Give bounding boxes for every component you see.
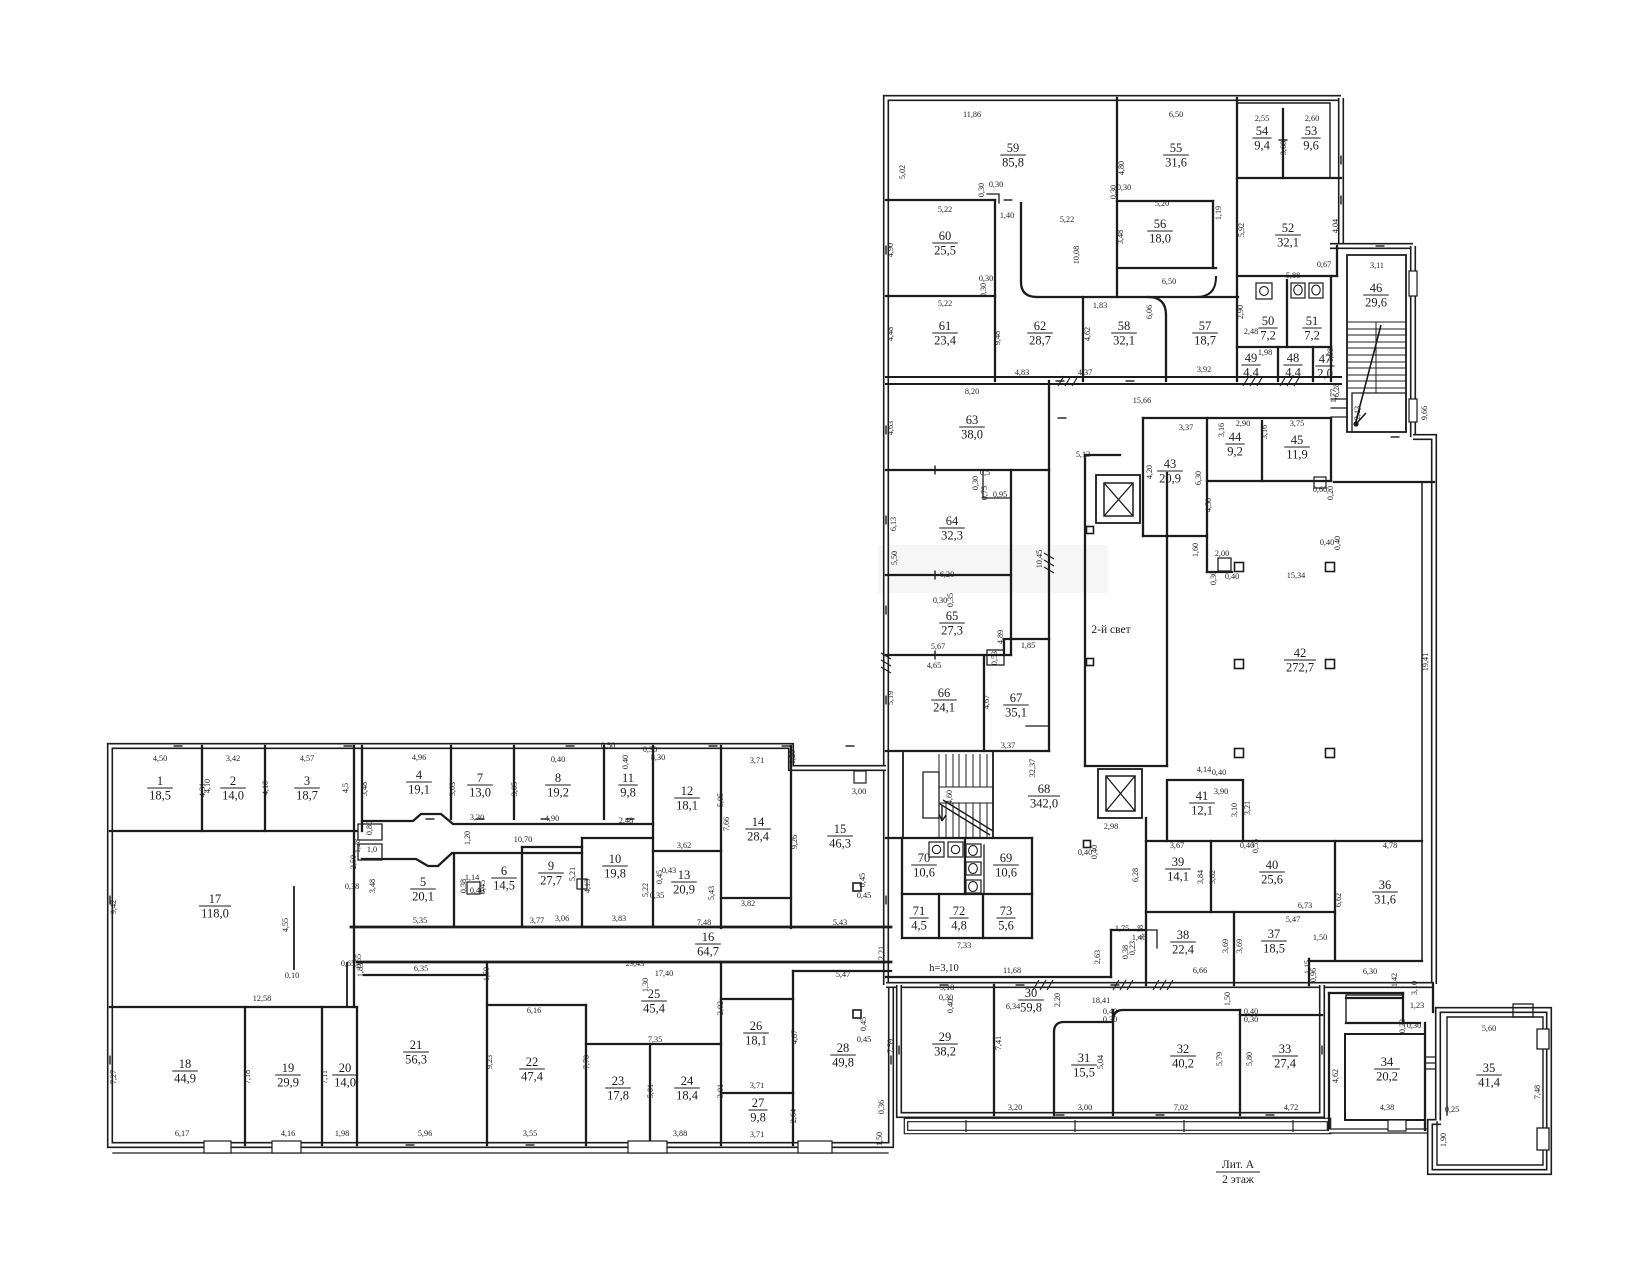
svg-text:Лит. А: Лит. А bbox=[1222, 1159, 1255, 1171]
svg-text:6,30: 6,30 bbox=[1194, 471, 1203, 485]
svg-text:3,03: 3,03 bbox=[448, 782, 457, 796]
svg-text:9,66: 9,66 bbox=[1420, 406, 1429, 420]
svg-text:45: 45 bbox=[1291, 433, 1304, 447]
svg-text:6,28: 6,28 bbox=[1131, 868, 1140, 882]
svg-text:3,30: 3,30 bbox=[470, 813, 484, 822]
svg-text:5,67: 5,67 bbox=[931, 642, 945, 651]
svg-text:1,50: 1,50 bbox=[1313, 933, 1327, 942]
svg-text:20,9: 20,9 bbox=[673, 883, 695, 897]
svg-text:3,48: 3,48 bbox=[368, 879, 377, 893]
svg-text:20,2: 20,2 bbox=[1376, 1070, 1398, 1084]
svg-text:5,88: 5,88 bbox=[1286, 271, 1300, 280]
svg-text:58: 58 bbox=[1118, 319, 1131, 333]
svg-text:0,35: 0,35 bbox=[946, 593, 955, 607]
svg-text:4,90: 4,90 bbox=[886, 243, 895, 257]
svg-text:7,11: 7,11 bbox=[320, 1070, 329, 1084]
svg-text:29,6: 29,6 bbox=[1365, 296, 1387, 310]
svg-text:48: 48 bbox=[1287, 351, 1300, 365]
svg-text:1,60: 1,60 bbox=[1191, 543, 1200, 557]
svg-text:5,43: 5,43 bbox=[833, 918, 847, 927]
svg-text:0,30: 0,30 bbox=[1209, 571, 1218, 585]
svg-text:4,10: 4,10 bbox=[261, 781, 270, 795]
svg-text:0,38: 0,38 bbox=[1121, 945, 1130, 959]
svg-text:10,70: 10,70 bbox=[514, 835, 532, 844]
svg-text:7,02: 7,02 bbox=[1174, 1103, 1188, 1112]
svg-text:38,0: 38,0 bbox=[961, 428, 983, 442]
svg-text:53: 53 bbox=[1305, 124, 1318, 138]
svg-text:4,55: 4,55 bbox=[281, 918, 290, 932]
svg-text:46,3: 46,3 bbox=[829, 837, 851, 851]
svg-text:32,1: 32,1 bbox=[1277, 236, 1299, 250]
svg-text:38: 38 bbox=[1177, 928, 1190, 942]
svg-text:4,13: 4,13 bbox=[583, 879, 592, 893]
svg-text:4,20: 4,20 bbox=[1145, 465, 1154, 479]
svg-text:0,40: 0,40 bbox=[1333, 536, 1342, 550]
svg-text:40: 40 bbox=[1266, 858, 1279, 872]
svg-text:4,87: 4,87 bbox=[790, 1030, 799, 1044]
svg-text:63: 63 bbox=[966, 413, 979, 427]
svg-text:0,40: 0,40 bbox=[1320, 538, 1334, 547]
svg-text:9: 9 bbox=[548, 859, 554, 873]
svg-text:66: 66 bbox=[938, 686, 951, 700]
svg-text:14,5: 14,5 bbox=[493, 879, 515, 893]
svg-text:3,77: 3,77 bbox=[530, 916, 544, 925]
svg-text:18,41: 18,41 bbox=[1092, 996, 1110, 1005]
svg-text:8,20: 8,20 bbox=[965, 387, 979, 396]
svg-text:7,27: 7,27 bbox=[109, 1070, 118, 1084]
svg-text:61: 61 bbox=[939, 319, 952, 333]
svg-text:0,40: 0,40 bbox=[1090, 845, 1099, 859]
svg-text:4,50: 4,50 bbox=[1204, 498, 1213, 512]
svg-text:4,5: 4,5 bbox=[341, 783, 350, 793]
svg-text:38,2: 38,2 bbox=[934, 1045, 956, 1059]
svg-text:2 этаж: 2 этаж bbox=[1222, 1174, 1254, 1186]
svg-text:4,16: 4,16 bbox=[281, 1129, 295, 1138]
svg-text:1,98: 1,98 bbox=[1258, 348, 1272, 357]
svg-text:7: 7 bbox=[477, 771, 483, 785]
svg-text:1,50: 1,50 bbox=[482, 967, 491, 981]
svg-text:1,19: 1,19 bbox=[1214, 206, 1223, 220]
svg-text:41,4: 41,4 bbox=[1478, 1076, 1501, 1090]
svg-text:19,2: 19,2 bbox=[547, 786, 569, 800]
svg-text:3,42: 3,42 bbox=[226, 754, 240, 763]
svg-text:12,58: 12,58 bbox=[253, 994, 271, 1003]
svg-text:18,7: 18,7 bbox=[296, 789, 318, 803]
svg-text:5,6: 5,6 bbox=[998, 919, 1014, 933]
svg-text:1,15: 1,15 bbox=[1303, 960, 1312, 974]
svg-text:5,60: 5,60 bbox=[1482, 1024, 1496, 1033]
svg-text:18,4: 18,4 bbox=[676, 1089, 699, 1103]
svg-text:56,3: 56,3 bbox=[405, 1053, 427, 1067]
svg-text:3,71: 3,71 bbox=[750, 1130, 764, 1139]
svg-text:31,6: 31,6 bbox=[1165, 156, 1187, 170]
svg-text:0,30: 0,30 bbox=[1103, 1015, 1117, 1024]
svg-text:14,0: 14,0 bbox=[334, 1076, 356, 1090]
svg-text:45,4: 45,4 bbox=[643, 1002, 666, 1016]
svg-text:69: 69 bbox=[1000, 851, 1013, 865]
svg-text:19: 19 bbox=[282, 1061, 295, 1075]
svg-text:9,8: 9,8 bbox=[620, 786, 636, 800]
svg-text:0,30: 0,30 bbox=[979, 274, 993, 283]
svg-text:65: 65 bbox=[946, 609, 959, 623]
svg-text:59,8: 59,8 bbox=[1020, 1001, 1042, 1015]
svg-text:27,3: 27,3 bbox=[941, 624, 963, 638]
svg-text:6,06: 6,06 bbox=[1145, 305, 1154, 319]
svg-text:17: 17 bbox=[209, 892, 222, 906]
svg-text:3,71: 3,71 bbox=[750, 756, 764, 765]
svg-text:0,40: 0,40 bbox=[1212, 768, 1226, 777]
svg-text:3,06: 3,06 bbox=[555, 914, 569, 923]
svg-text:6,73: 6,73 bbox=[1298, 901, 1312, 910]
svg-text:6: 6 bbox=[501, 864, 507, 878]
svg-text:5,02: 5,02 bbox=[898, 165, 907, 179]
svg-text:26: 26 bbox=[750, 1019, 763, 1033]
svg-text:5,22: 5,22 bbox=[1060, 215, 1074, 224]
svg-text:34: 34 bbox=[1381, 1055, 1394, 1069]
svg-text:4,14: 4,14 bbox=[1197, 765, 1211, 774]
svg-text:342,0: 342,0 bbox=[1030, 797, 1058, 811]
svg-text:19,8: 19,8 bbox=[604, 867, 626, 881]
svg-text:4,57: 4,57 bbox=[300, 754, 314, 763]
svg-text:3,16: 3,16 bbox=[1260, 425, 1269, 439]
svg-text:17,40: 17,40 bbox=[655, 969, 673, 978]
svg-text:5,05: 5,05 bbox=[716, 793, 725, 807]
svg-text:0,36: 0,36 bbox=[877, 1100, 886, 1114]
svg-text:41: 41 bbox=[1196, 789, 1209, 803]
svg-text:0,10: 0,10 bbox=[285, 971, 299, 980]
svg-text:0,43: 0,43 bbox=[662, 866, 676, 875]
svg-text:73: 73 bbox=[1000, 904, 1013, 918]
svg-text:5: 5 bbox=[420, 875, 426, 889]
svg-text:4,83: 4,83 bbox=[1015, 368, 1029, 377]
svg-text:0,40: 0,40 bbox=[621, 755, 630, 769]
svg-text:7,35: 7,35 bbox=[648, 1035, 662, 1044]
svg-text:4,65: 4,65 bbox=[927, 661, 941, 670]
svg-text:0,55: 0,55 bbox=[1251, 839, 1260, 853]
svg-text:3,82: 3,82 bbox=[1208, 870, 1217, 884]
svg-text:18,7: 18,7 bbox=[1194, 334, 1216, 348]
svg-text:4,96: 4,96 bbox=[412, 753, 426, 762]
svg-text:6,62: 6,62 bbox=[1334, 893, 1343, 907]
svg-text:1,98: 1,98 bbox=[335, 1129, 349, 1138]
svg-text:3,62: 3,62 bbox=[677, 841, 691, 850]
svg-text:40,2: 40,2 bbox=[1172, 1057, 1194, 1071]
svg-text:30: 30 bbox=[1025, 986, 1038, 1000]
svg-text:2,63: 2,63 bbox=[1093, 950, 1102, 964]
svg-text:7,18: 7,18 bbox=[243, 1070, 252, 1084]
svg-text:25,5: 25,5 bbox=[934, 244, 956, 258]
svg-text:2,60: 2,60 bbox=[1305, 114, 1319, 123]
svg-text:0,53: 0,53 bbox=[990, 651, 999, 665]
svg-text:0,20: 0,20 bbox=[1326, 486, 1335, 500]
svg-text:3,88: 3,88 bbox=[673, 1129, 687, 1138]
svg-text:64,7: 64,7 bbox=[697, 945, 719, 959]
svg-text:10,08: 10,08 bbox=[1072, 246, 1081, 264]
svg-text:5,22: 5,22 bbox=[641, 883, 650, 897]
svg-text:7,2: 7,2 bbox=[1304, 329, 1320, 343]
svg-text:1,20: 1,20 bbox=[463, 831, 472, 845]
svg-text:70: 70 bbox=[918, 851, 931, 865]
svg-text:23: 23 bbox=[612, 1074, 625, 1088]
svg-text:25,6: 25,6 bbox=[1261, 873, 1283, 887]
svg-text:1,83: 1,83 bbox=[1093, 301, 1107, 310]
svg-text:0,30: 0,30 bbox=[1244, 1015, 1258, 1024]
svg-text:0,40: 0,40 bbox=[470, 886, 484, 895]
svg-text:10,45: 10,45 bbox=[1035, 550, 1044, 568]
svg-text:28: 28 bbox=[837, 1041, 850, 1055]
svg-text:1,85: 1,85 bbox=[1021, 641, 1035, 650]
svg-text:1,20: 1,20 bbox=[788, 750, 797, 764]
svg-text:1,30: 1,30 bbox=[641, 978, 650, 992]
svg-text:4,72: 4,72 bbox=[1284, 1103, 1298, 1112]
svg-text:18,1: 18,1 bbox=[745, 1034, 767, 1048]
svg-text:9,42: 9,42 bbox=[109, 900, 118, 914]
svg-text:10,6: 10,6 bbox=[913, 866, 935, 880]
svg-text:3: 3 bbox=[304, 774, 310, 788]
svg-text:18: 18 bbox=[179, 1057, 192, 1071]
svg-text:3,21: 3,21 bbox=[1243, 801, 1252, 815]
svg-text:59: 59 bbox=[1007, 141, 1020, 155]
svg-text:2,21: 2,21 bbox=[877, 946, 886, 960]
svg-text:56: 56 bbox=[1154, 217, 1167, 231]
svg-text:2,48: 2,48 bbox=[1244, 327, 1258, 336]
svg-text:1,28: 1,28 bbox=[353, 839, 362, 853]
svg-text:2,0: 2,0 bbox=[1317, 367, 1333, 381]
svg-text:0,38: 0,38 bbox=[459, 879, 468, 893]
svg-text:5,18: 5,18 bbox=[940, 983, 954, 992]
svg-text:28,7: 28,7 bbox=[1029, 334, 1051, 348]
svg-text:29,9: 29,9 bbox=[277, 1076, 299, 1090]
svg-text:54: 54 bbox=[1256, 124, 1269, 138]
svg-text:5,19: 5,19 bbox=[886, 691, 895, 705]
svg-text:9,48: 9,48 bbox=[993, 331, 1002, 345]
svg-text:52: 52 bbox=[1282, 221, 1295, 235]
svg-text:7,41: 7,41 bbox=[994, 1036, 1003, 1050]
svg-text:0,60: 0,60 bbox=[1313, 485, 1327, 494]
svg-text:55: 55 bbox=[1170, 141, 1183, 155]
svg-text:1,90: 1,90 bbox=[1439, 1133, 1448, 1147]
svg-text:13: 13 bbox=[678, 868, 691, 882]
svg-text:7,48: 7,48 bbox=[697, 918, 711, 927]
svg-text:0,40: 0,40 bbox=[551, 755, 565, 764]
svg-text:24: 24 bbox=[681, 1074, 694, 1088]
svg-text:29: 29 bbox=[939, 1030, 952, 1044]
svg-text:4,5: 4,5 bbox=[911, 919, 927, 933]
svg-text:0,5: 0,5 bbox=[980, 468, 990, 477]
svg-text:12: 12 bbox=[681, 784, 694, 798]
svg-text:2,55: 2,55 bbox=[1255, 114, 1269, 123]
svg-text:10: 10 bbox=[609, 852, 622, 866]
svg-text:2,00: 2,00 bbox=[1215, 549, 1229, 558]
svg-text:2: 2 bbox=[230, 774, 236, 788]
svg-text:18,1: 18,1 bbox=[676, 799, 698, 813]
svg-text:5,20: 5,20 bbox=[1155, 199, 1169, 208]
svg-text:118,0: 118,0 bbox=[201, 907, 229, 921]
svg-text:3,10: 3,10 bbox=[1230, 803, 1239, 817]
svg-text:4,60: 4,60 bbox=[945, 790, 954, 804]
svg-text:6,50: 6,50 bbox=[1162, 277, 1176, 286]
svg-text:3,37: 3,37 bbox=[1179, 423, 1193, 432]
svg-text:6,35: 6,35 bbox=[414, 964, 428, 973]
svg-text:1,0: 1,0 bbox=[367, 845, 377, 854]
svg-text:1,23: 1,23 bbox=[1410, 1001, 1424, 1010]
svg-text:1,50: 1,50 bbox=[1223, 992, 1232, 1006]
svg-text:4,37: 4,37 bbox=[1078, 368, 1092, 377]
svg-text:0,50: 0,50 bbox=[601, 741, 615, 750]
svg-text:5,43: 5,43 bbox=[707, 886, 716, 900]
svg-text:5,35: 5,35 bbox=[413, 916, 427, 925]
svg-text:9,6: 9,6 bbox=[1303, 139, 1319, 153]
svg-text:51: 51 bbox=[1306, 314, 1319, 328]
svg-text:4,62: 4,62 bbox=[1331, 1069, 1340, 1083]
svg-text:9,2: 9,2 bbox=[1227, 445, 1243, 459]
svg-text:5,80: 5,80 bbox=[1245, 1052, 1254, 1066]
svg-text:0,23: 0,23 bbox=[1398, 1019, 1407, 1033]
svg-text:1,75: 1,75 bbox=[1115, 924, 1129, 933]
svg-text:68: 68 bbox=[1038, 782, 1051, 796]
svg-text:5,21: 5,21 bbox=[568, 867, 577, 881]
svg-text:49,8: 49,8 bbox=[832, 1056, 854, 1070]
svg-text:9,8: 9,8 bbox=[750, 1111, 766, 1125]
svg-text:27,7: 27,7 bbox=[540, 874, 562, 888]
svg-text:31,6: 31,6 bbox=[1374, 893, 1396, 907]
svg-text:4,90: 4,90 bbox=[545, 814, 559, 823]
svg-text:42: 42 bbox=[1294, 646, 1307, 660]
svg-text:0,30: 0,30 bbox=[977, 183, 986, 197]
svg-text:4,04: 4,04 bbox=[1331, 219, 1340, 233]
svg-text:0,45: 0,45 bbox=[857, 891, 871, 900]
svg-text:4,38: 4,38 bbox=[1380, 1103, 1394, 1112]
svg-text:4,80: 4,80 bbox=[1117, 161, 1126, 175]
svg-text:64: 64 bbox=[946, 514, 959, 528]
svg-text:0,30: 0,30 bbox=[933, 596, 947, 605]
svg-text:47,4: 47,4 bbox=[521, 1070, 544, 1084]
svg-text:0,45: 0,45 bbox=[857, 1035, 871, 1044]
svg-text:1,50: 1,50 bbox=[875, 1132, 884, 1146]
svg-text:1,46: 1,46 bbox=[1132, 933, 1146, 942]
svg-text:0,30: 0,30 bbox=[979, 283, 988, 297]
svg-text:3,82: 3,82 bbox=[741, 899, 755, 908]
svg-text:22: 22 bbox=[526, 1055, 539, 1069]
svg-text:3,67: 3,67 bbox=[1170, 841, 1184, 850]
svg-text:20,1: 20,1 bbox=[412, 890, 434, 904]
svg-text:32,1: 32,1 bbox=[1113, 334, 1135, 348]
svg-text:3,69: 3,69 bbox=[1235, 939, 1244, 953]
svg-text:35,1: 35,1 bbox=[1005, 706, 1027, 720]
svg-text:15,5: 15,5 bbox=[1073, 1066, 1095, 1080]
svg-text:4,4: 4,4 bbox=[1285, 366, 1301, 380]
svg-text:19,41: 19,41 bbox=[1421, 653, 1430, 671]
svg-text:4,4: 4,4 bbox=[1243, 366, 1259, 380]
svg-text:5,47: 5,47 bbox=[836, 970, 850, 979]
svg-text:3,75: 3,75 bbox=[1290, 419, 1304, 428]
svg-text:21: 21 bbox=[410, 1038, 423, 1052]
svg-text:2,90: 2,90 bbox=[1236, 419, 1250, 428]
svg-text:32,37: 32,37 bbox=[1028, 759, 1037, 777]
svg-text:11: 11 bbox=[622, 771, 634, 785]
svg-text:20: 20 bbox=[339, 1061, 352, 1075]
svg-text:0,80: 0,80 bbox=[365, 821, 374, 835]
svg-text:11,68: 11,68 bbox=[1003, 966, 1021, 975]
svg-text:0,35: 0,35 bbox=[650, 891, 664, 900]
svg-text:32,3: 32,3 bbox=[941, 529, 963, 543]
svg-text:49: 49 bbox=[1245, 351, 1258, 365]
svg-text:36: 36 bbox=[1379, 878, 1392, 892]
svg-text:5,13: 5,13 bbox=[1076, 450, 1090, 459]
svg-text:60: 60 bbox=[939, 229, 952, 243]
svg-text:3,00: 3,00 bbox=[852, 787, 866, 796]
svg-text:7,66: 7,66 bbox=[722, 817, 731, 831]
svg-text:4,8: 4,8 bbox=[951, 919, 967, 933]
svg-text:15,34: 15,34 bbox=[1287, 571, 1305, 580]
svg-text:4,50: 4,50 bbox=[153, 754, 167, 763]
svg-text:18,5: 18,5 bbox=[1263, 942, 1285, 956]
svg-text:0,30: 0,30 bbox=[1117, 183, 1131, 192]
svg-text:2,64: 2,64 bbox=[789, 1109, 798, 1123]
svg-text:3,00: 3,00 bbox=[1078, 1103, 1092, 1112]
svg-text:4,78: 4,78 bbox=[1383, 841, 1397, 850]
svg-text:2,98: 2,98 bbox=[1104, 822, 1118, 831]
svg-text:0,45: 0,45 bbox=[858, 873, 867, 887]
svg-text:71: 71 bbox=[913, 904, 926, 918]
svg-text:1,77: 1,77 bbox=[1329, 389, 1338, 403]
svg-text:3,37: 3,37 bbox=[1001, 741, 1015, 750]
svg-text:35: 35 bbox=[1483, 1061, 1496, 1075]
svg-text:7,33: 7,33 bbox=[957, 941, 971, 950]
svg-text:44,9: 44,9 bbox=[174, 1072, 196, 1086]
svg-text:43: 43 bbox=[1164, 457, 1177, 471]
svg-text:5,04: 5,04 bbox=[1096, 1055, 1105, 1069]
svg-text:0,75: 0,75 bbox=[980, 486, 989, 500]
svg-text:4,67: 4,67 bbox=[982, 695, 991, 709]
svg-text:3,11: 3,11 bbox=[1370, 261, 1384, 270]
svg-text:24,1: 24,1 bbox=[933, 701, 955, 715]
svg-text:h=3,10: h=3,10 bbox=[929, 963, 959, 974]
svg-text:3,48: 3,48 bbox=[360, 782, 369, 796]
svg-text:6,16: 6,16 bbox=[527, 1006, 541, 1015]
svg-text:2,20: 2,20 bbox=[1053, 993, 1062, 1007]
svg-text:0,65: 0,65 bbox=[341, 959, 355, 968]
svg-text:1: 1 bbox=[157, 774, 163, 788]
svg-text:39: 39 bbox=[1172, 855, 1185, 869]
svg-text:37: 37 bbox=[1268, 927, 1281, 941]
svg-text:31: 31 bbox=[1078, 1051, 1091, 1065]
svg-text:14,1: 14,1 bbox=[1167, 870, 1189, 884]
svg-text:18,0: 18,0 bbox=[1149, 232, 1171, 246]
svg-text:5,47: 5,47 bbox=[1286, 915, 1300, 924]
svg-text:6,13: 6,13 bbox=[889, 517, 898, 531]
svg-text:0,45: 0,45 bbox=[859, 1017, 868, 1031]
svg-text:2,02: 2,02 bbox=[716, 1001, 725, 1015]
svg-text:3,10: 3,10 bbox=[1410, 981, 1419, 995]
svg-text:7,70: 7,70 bbox=[582, 1055, 591, 1069]
svg-text:4,63: 4,63 bbox=[886, 421, 895, 435]
svg-text:12,1: 12,1 bbox=[1191, 804, 1213, 818]
svg-text:6,30: 6,30 bbox=[1363, 967, 1377, 976]
svg-text:6,50: 6,50 bbox=[1169, 110, 1183, 119]
svg-text:9,23: 9,23 bbox=[485, 1055, 494, 1069]
svg-text:3,68: 3,68 bbox=[1279, 141, 1288, 155]
svg-text:3,83: 3,83 bbox=[612, 914, 626, 923]
svg-text:7,59: 7,59 bbox=[886, 1039, 895, 1053]
svg-text:3,05: 3,05 bbox=[510, 782, 519, 796]
svg-text:32: 32 bbox=[1177, 1042, 1190, 1056]
svg-text:6,17: 6,17 bbox=[175, 1129, 189, 1138]
svg-text:72: 72 bbox=[953, 904, 966, 918]
svg-text:8: 8 bbox=[555, 771, 561, 785]
svg-text:2,90: 2,90 bbox=[1236, 305, 1245, 319]
svg-text:4,89: 4,89 bbox=[996, 630, 1005, 644]
